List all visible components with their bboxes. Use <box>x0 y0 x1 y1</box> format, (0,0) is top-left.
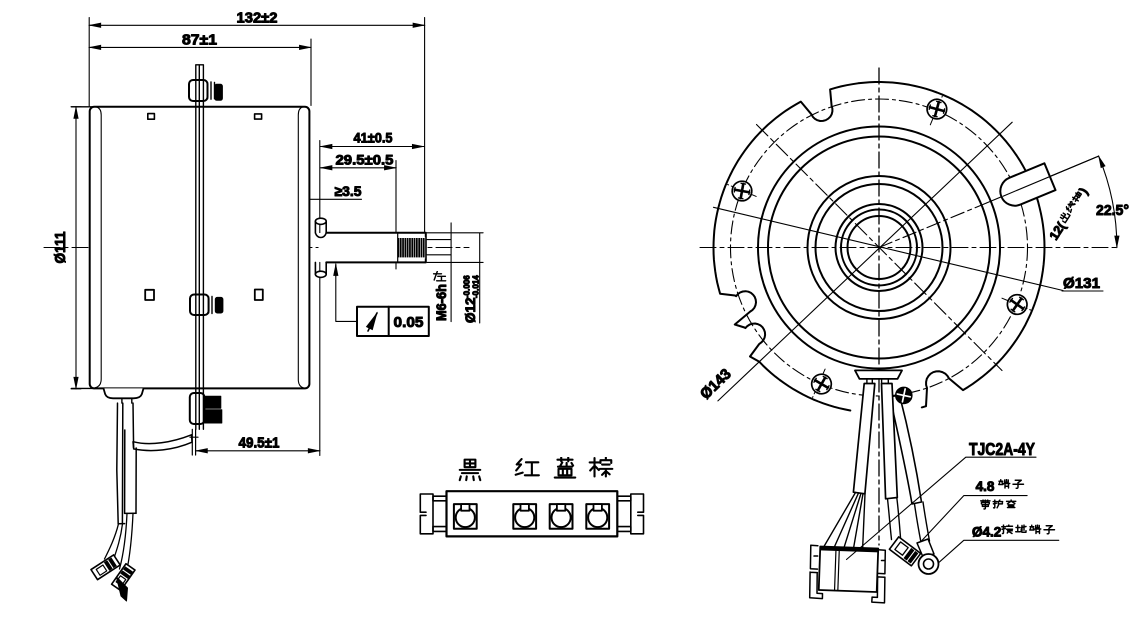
svg-text:-0.006: -0.006 <box>463 275 472 298</box>
svg-text:Ø4.2: Ø4.2 <box>972 525 1001 540</box>
svg-text:Ø131: Ø131 <box>1063 275 1100 292</box>
svg-text:Ø12: Ø12 <box>463 297 478 323</box>
svg-text:0.05: 0.05 <box>394 314 424 331</box>
svg-text:4.8: 4.8 <box>976 479 995 494</box>
svg-text:-0.014: -0.014 <box>472 275 481 298</box>
svg-text:49.5±1: 49.5±1 <box>239 435 280 452</box>
svg-text:TJC2A-4Y: TJC2A-4Y <box>969 439 1035 459</box>
svg-text:29.5±0.5: 29.5±0.5 <box>336 152 394 168</box>
svg-text:Ø111: Ø111 <box>52 232 69 264</box>
svg-text:≥3.5: ≥3.5 <box>335 183 362 199</box>
svg-text:41±0.5: 41±0.5 <box>354 130 393 146</box>
svg-text:87±1: 87±1 <box>182 32 217 49</box>
svg-text:132±2: 132±2 <box>237 10 278 27</box>
svg-text:M6-6h: M6-6h <box>434 284 449 321</box>
